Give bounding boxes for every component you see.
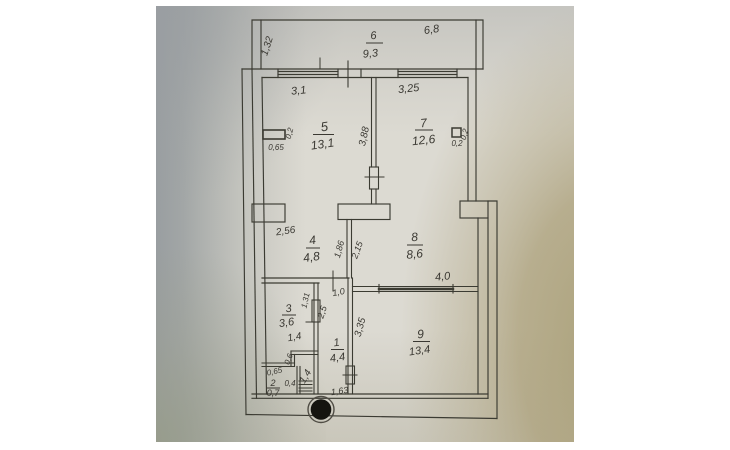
svg-text:4,4: 4,4 (329, 351, 346, 365)
svg-text:8,6: 8,6 (406, 246, 424, 262)
svg-text:4,8: 4,8 (302, 249, 321, 265)
svg-text:9,3: 9,3 (362, 47, 379, 61)
svg-text:3,1: 3,1 (290, 84, 306, 98)
svg-text:2: 2 (269, 378, 275, 388)
svg-text:1,0: 1,0 (331, 286, 345, 298)
svg-text:0,7: 0,7 (267, 388, 281, 398)
svg-text:4,0: 4,0 (434, 270, 451, 284)
svg-text:3,6: 3,6 (278, 316, 296, 330)
svg-text:3,25: 3,25 (397, 82, 420, 96)
svg-text:12,6: 12,6 (411, 132, 436, 148)
svg-text:0,65: 0,65 (268, 143, 284, 152)
svg-text:0,4: 0,4 (284, 379, 296, 388)
svg-text:6,8: 6,8 (423, 23, 441, 37)
svg-text:0,2: 0,2 (451, 139, 463, 148)
